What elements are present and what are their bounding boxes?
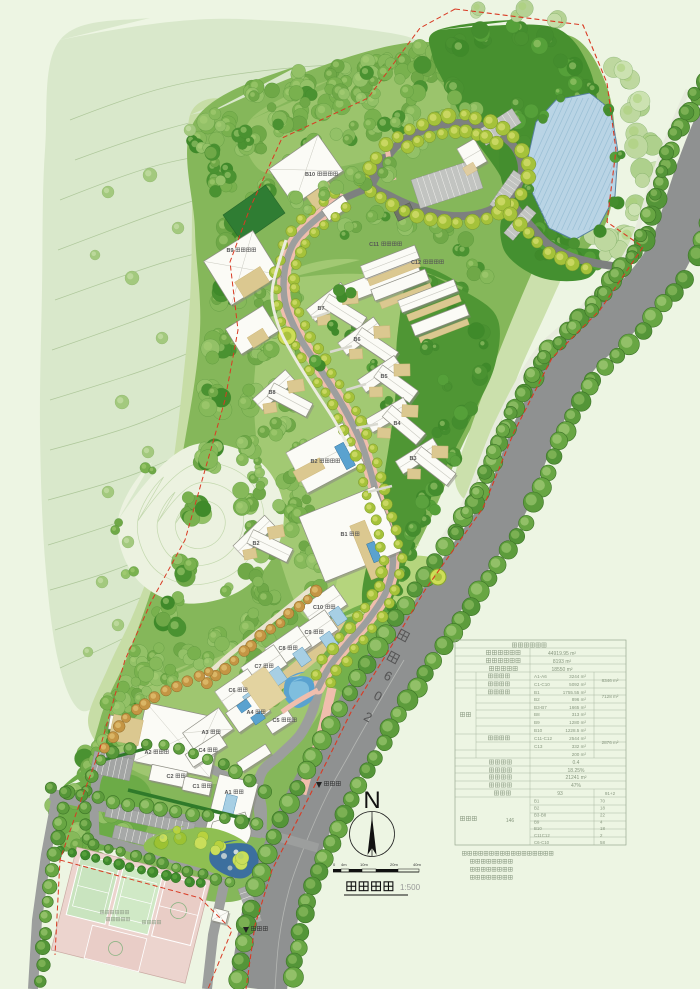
svg-text:B9: B9 <box>534 720 540 725</box>
svg-text:B7: B7 <box>317 306 324 312</box>
svg-text:93: 93 <box>557 791 563 797</box>
svg-text:44919.95 m²: 44919.95 m² <box>548 651 576 657</box>
svg-text:B3-B8: B3-B8 <box>534 812 547 817</box>
svg-text:313 m²: 313 m² <box>572 712 587 717</box>
svg-text:20m: 20m <box>390 862 398 867</box>
svg-text:B8: B8 <box>534 712 540 717</box>
svg-text:B9: B9 <box>226 248 233 254</box>
svg-text:40m: 40m <box>413 862 421 867</box>
svg-text:1228.5 m²: 1228.5 m² <box>565 728 586 733</box>
svg-text:47%: 47% <box>571 783 582 789</box>
svg-text:18: 18 <box>600 826 605 831</box>
svg-text:8193 m²: 8193 m² <box>553 659 572 665</box>
svg-text:B3: B3 <box>409 456 416 462</box>
svg-text:896 m²: 896 m² <box>572 697 587 702</box>
svg-text:A3: A3 <box>201 730 208 736</box>
svg-text:18550 m²: 18550 m² <box>551 667 572 673</box>
svg-text:4m: 4m <box>341 862 347 867</box>
svg-text:2544 m²: 2544 m² <box>569 736 586 741</box>
svg-text:A4: A4 <box>246 710 254 716</box>
svg-text:B1: B1 <box>534 799 540 804</box>
svg-text:5092 m²: 5092 m² <box>569 682 586 687</box>
svg-text:B1: B1 <box>534 690 540 695</box>
svg-text:91+2: 91+2 <box>605 791 616 796</box>
svg-text:C11: C11 <box>369 242 379 248</box>
svg-text:B2: B2 <box>252 541 259 547</box>
svg-text:58: 58 <box>600 840 605 845</box>
svg-text:1:500: 1:500 <box>400 883 421 892</box>
svg-text:C5: C5 <box>272 718 279 724</box>
svg-text:C11-C12: C11-C12 <box>534 736 552 741</box>
svg-text:1280 m²: 1280 m² <box>569 720 586 725</box>
svg-text:C4: C4 <box>198 748 206 754</box>
svg-text:B4: B4 <box>393 421 401 427</box>
svg-text:C12: C12 <box>411 260 421 266</box>
svg-text:C9: C9 <box>304 630 311 636</box>
svg-text:B10: B10 <box>305 172 315 178</box>
svg-text:C1-C10: C1-C10 <box>534 682 550 687</box>
svg-text:B3-B7: B3-B7 <box>534 705 547 710</box>
svg-text:1665 m²: 1665 m² <box>569 705 586 710</box>
svg-text:10m: 10m <box>360 862 368 867</box>
svg-text:A2: A2 <box>144 750 151 756</box>
svg-text:C13: C13 <box>534 744 543 749</box>
svg-text:C6-C10: C6-C10 <box>534 840 550 845</box>
svg-text:2876 m²: 2876 m² <box>602 740 619 745</box>
svg-text:200 m²: 200 m² <box>572 752 587 757</box>
svg-text:332 m²: 332 m² <box>572 744 587 749</box>
svg-text:B2: B2 <box>534 806 540 811</box>
svg-text:B8: B8 <box>268 390 275 396</box>
svg-text:146: 146 <box>506 818 515 824</box>
svg-text:1755.55 m²: 1755.55 m² <box>563 690 587 695</box>
svg-text:C8: C8 <box>278 646 285 652</box>
svg-text:18.25%: 18.25% <box>568 768 586 774</box>
svg-text:B10: B10 <box>534 826 542 831</box>
svg-text:B1: B1 <box>340 532 347 538</box>
svg-text:B5: B5 <box>380 374 387 380</box>
svg-text:B9: B9 <box>534 819 540 824</box>
svg-text:A1-A6: A1-A6 <box>534 674 547 679</box>
svg-text:B10: B10 <box>534 728 543 733</box>
svg-text:0.4: 0.4 <box>573 760 580 766</box>
svg-text:B2: B2 <box>310 459 317 465</box>
svg-text:21241 m²: 21241 m² <box>565 775 586 781</box>
svg-text:C1: C1 <box>192 784 199 790</box>
svg-text:C10: C10 <box>313 605 323 611</box>
svg-text:C7: C7 <box>254 664 261 670</box>
svg-text:A1: A1 <box>224 790 231 796</box>
svg-text:C11C12: C11C12 <box>534 833 550 838</box>
svg-text:7128 m²: 7128 m² <box>602 694 619 699</box>
svg-text:22: 22 <box>600 812 605 817</box>
svg-text:N: N <box>363 787 380 814</box>
svg-text:C2: C2 <box>166 774 173 780</box>
svg-text:B6: B6 <box>353 337 360 343</box>
svg-text:B2: B2 <box>534 697 540 702</box>
svg-text:18: 18 <box>600 806 605 811</box>
svg-text:C6: C6 <box>228 688 235 694</box>
svg-text:3244 m²: 3244 m² <box>569 674 586 679</box>
svg-text:70: 70 <box>600 799 605 804</box>
svg-text:8346 m²: 8346 m² <box>602 678 619 683</box>
